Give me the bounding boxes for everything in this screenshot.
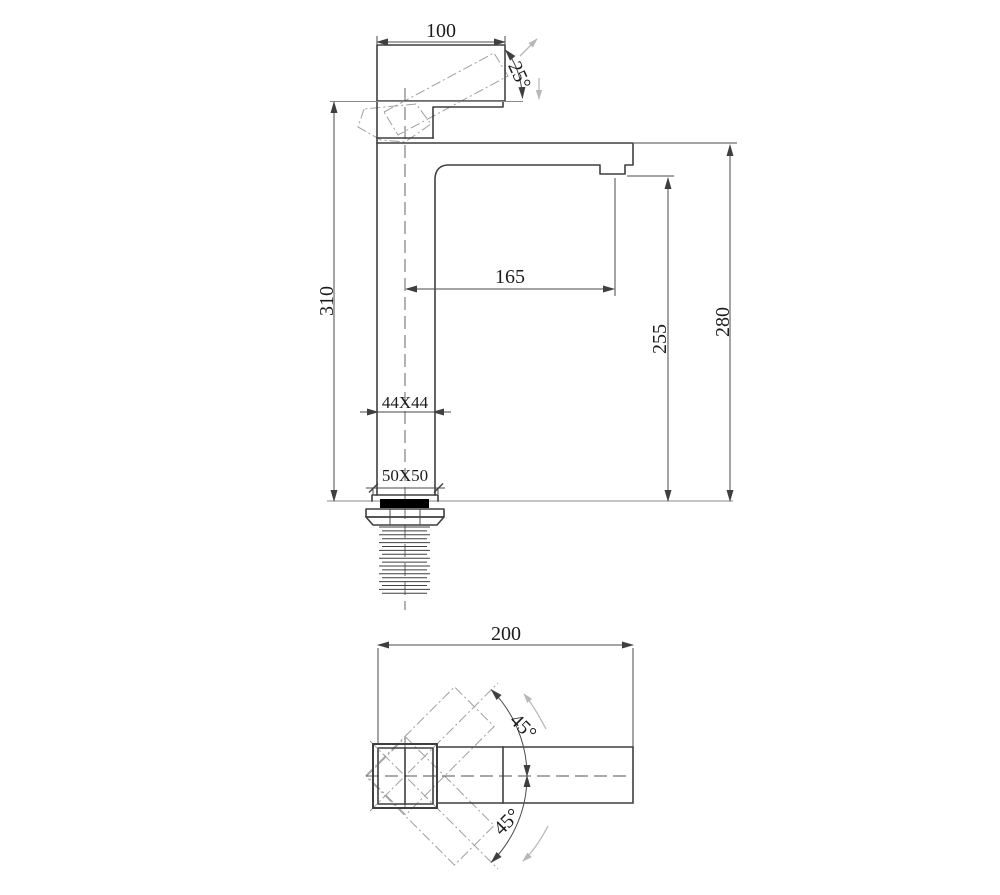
dim-spout-reach: 165: [406, 178, 615, 296]
top-view: 200 45° 45°: [366, 623, 633, 869]
thread-lines: [379, 527, 430, 593]
dim-base-section: 50X50: [366, 466, 445, 494]
dim-overall-height: 310: [316, 102, 338, 501]
faucet-technical-drawing: 100 25° 310 165 255: [0, 0, 1000, 895]
rubber-gasket: [380, 499, 429, 508]
spout-bar-outline: [437, 747, 633, 803]
phantom-centerline-lower: [370, 741, 498, 869]
dim-50-extensions: [373, 488, 438, 494]
phantom-handle-base: [358, 104, 431, 142]
swivel-motion-arrow-lower: [523, 826, 548, 861]
dim-280-label: 280: [712, 307, 734, 337]
dim-45-lower-label: 45°: [489, 804, 524, 839]
dim-310-label: 310: [316, 286, 338, 316]
dim-200-label: 200: [491, 623, 521, 645]
handle-motion-arrow-up: [520, 39, 537, 56]
dim-44-label: 44X44: [382, 393, 429, 412]
dim-100-label: 100: [426, 20, 456, 42]
phantom-handle-blade: [384, 53, 508, 135]
handle-neck-step: [433, 101, 503, 138]
dim-spout-top-height: 280: [634, 143, 737, 501]
dim-200-extensions: [378, 648, 633, 747]
spout-outline: [377, 143, 633, 495]
side-view: 100 25° 310 165 255: [316, 20, 737, 610]
dim-handle-angle: 25°: [503, 39, 539, 99]
dim-25-label: 25°: [503, 58, 535, 93]
dim-overall-length: 200: [378, 623, 633, 747]
dim-255-label: 255: [649, 324, 671, 354]
dim-body-section: 44X44: [360, 393, 451, 412]
dim-swivel-lower: 45°: [489, 776, 548, 862]
dim-outlet-height: 255: [627, 176, 674, 501]
dim-50-label: 50X50: [382, 466, 428, 485]
dim-165-label: 165: [495, 266, 525, 288]
dim-handle-width: 100: [377, 20, 505, 101]
handle-lever-outline: [377, 45, 505, 101]
drawing-canvas: 100 25° 310 165 255: [0, 0, 1000, 895]
dim-swivel-upper: 45°: [491, 690, 546, 776]
